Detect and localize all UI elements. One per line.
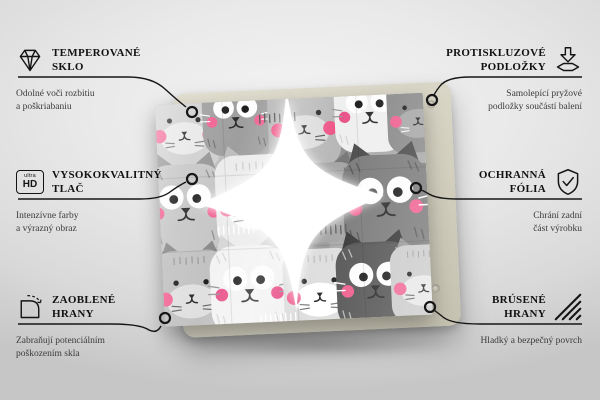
studio-background: TEMPEROVANÉ SKLO Odolné voči rozbitiu a …	[0, 0, 600, 400]
feature-title: TEMPEROVANÉ SKLO	[52, 46, 141, 75]
feature-protective-foil: OCHRANNÁ FÓLIA Chrání zadní část výrobku	[430, 164, 582, 237]
glass-front-panel	[155, 93, 433, 327]
feature-description: Chrání zadní část výrobku	[430, 210, 582, 237]
shield-check-icon	[554, 168, 582, 196]
feature-title: ZAOBLENÉ HRANY	[52, 293, 116, 322]
feature-rounded-edges: ZAOBLENÉ HRANY Zabraňují potenciálním po…	[16, 289, 168, 362]
brushed-edges-icon	[554, 293, 582, 321]
feature-high-quality-print: ultra HD VYSOKOKVALITNÝ TLAČ Intenzívne …	[16, 164, 168, 237]
ultra-hd-icon-label: HD	[23, 180, 37, 190]
feature-title: PROTISKLUZOVÉ PODLOŽKY	[446, 46, 546, 75]
rounded-corner-icon	[16, 293, 44, 321]
feature-description: Odolné voči rozbitiu a poškriabaniu	[16, 88, 168, 115]
diamond-icon	[16, 46, 44, 74]
feature-title: OCHRANNÁ FÓLIA	[479, 168, 546, 197]
feature-tempered-glass: TEMPEROVANÉ SKLO Odolné voči rozbitiu a …	[16, 42, 168, 115]
feature-description: Samolepící pryžové podložky součástí bal…	[430, 88, 582, 115]
ultra-hd-icon: ultra HD	[16, 168, 44, 196]
feature-description: Hladký a bezpečný povrch	[430, 335, 582, 348]
feature-ground-edges: BRÚSENÉ HRANY Hladký a bezpečný povrch	[430, 289, 582, 348]
feature-description: Zabraňují potenciálním poškozením skla	[16, 335, 168, 362]
feature-anti-slip-pads: PROTISKLUZOVÉ PODLOŽKY Samolepící pryžov…	[430, 42, 582, 115]
feature-title: BRÚSENÉ HRANY	[492, 293, 546, 322]
glass-board-product	[154, 79, 465, 344]
anti-slip-pads-icon	[554, 46, 582, 74]
feature-title: VYSOKOKVALITNÝ TLAČ	[52, 168, 162, 197]
feature-description: Intenzívne farby a výrazný obraz	[16, 210, 168, 237]
shine-sparkle-icon	[155, 93, 430, 317]
